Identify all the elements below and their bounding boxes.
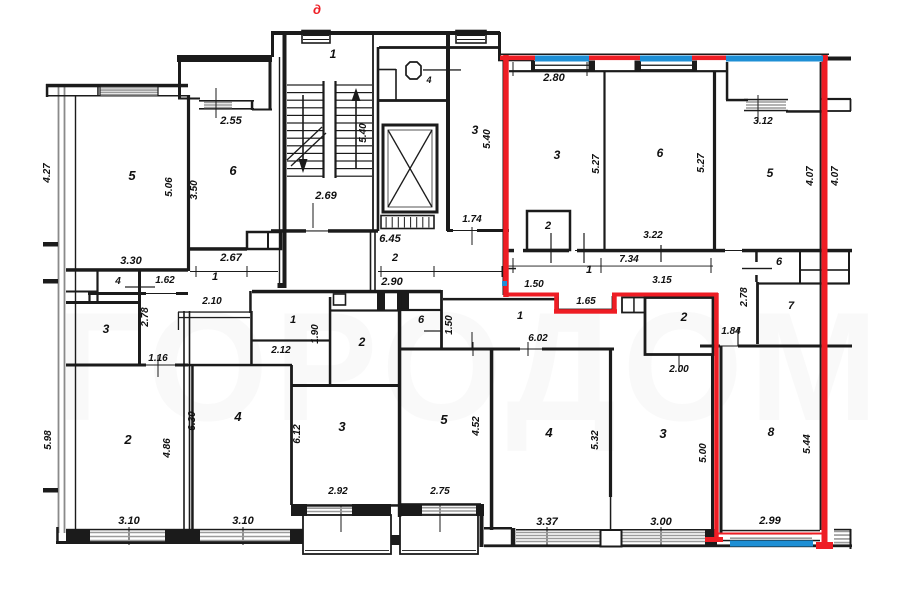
svg-text:2.80: 2.80 bbox=[542, 72, 565, 84]
svg-text:1: 1 bbox=[586, 264, 592, 276]
svg-text:1.90: 1.90 bbox=[310, 324, 321, 344]
svg-text:2.10: 2.10 bbox=[201, 296, 222, 307]
svg-text:2: 2 bbox=[358, 335, 366, 349]
svg-text:6: 6 bbox=[229, 163, 237, 178]
svg-text:1: 1 bbox=[212, 271, 218, 283]
svg-text:5: 5 bbox=[440, 412, 448, 427]
svg-text:6.02: 6.02 bbox=[528, 333, 548, 344]
svg-text:5.06: 5.06 bbox=[164, 177, 175, 197]
svg-text:5: 5 bbox=[128, 168, 136, 183]
svg-text:д: д bbox=[313, 2, 321, 17]
svg-text:1: 1 bbox=[290, 314, 296, 326]
svg-text:2.99: 2.99 bbox=[758, 515, 781, 527]
svg-text:1.50: 1.50 bbox=[524, 279, 544, 290]
svg-text:4.07: 4.07 bbox=[830, 166, 841, 187]
svg-text:1.65: 1.65 bbox=[576, 296, 596, 307]
svg-text:4.86: 4.86 bbox=[162, 438, 173, 459]
svg-text:5: 5 bbox=[767, 166, 774, 180]
svg-text:2: 2 bbox=[544, 220, 551, 232]
svg-text:5.27: 5.27 bbox=[591, 154, 602, 174]
svg-text:2.90: 2.90 bbox=[380, 276, 403, 288]
svg-text:3.12: 3.12 bbox=[753, 116, 773, 127]
svg-text:4: 4 bbox=[233, 409, 242, 424]
svg-text:2: 2 bbox=[680, 310, 688, 324]
svg-text:2.92: 2.92 bbox=[327, 486, 348, 497]
svg-text:2: 2 bbox=[123, 432, 132, 447]
svg-text:5.40: 5.40 bbox=[482, 129, 493, 149]
svg-text:4.07: 4.07 bbox=[805, 166, 816, 187]
svg-text:3: 3 bbox=[103, 322, 110, 336]
svg-text:5.98: 5.98 bbox=[43, 430, 54, 450]
svg-text:2.78: 2.78 bbox=[739, 287, 750, 308]
svg-text:3: 3 bbox=[554, 148, 561, 162]
svg-text:6: 6 bbox=[418, 314, 425, 326]
svg-text:4: 4 bbox=[425, 75, 431, 85]
svg-text:4: 4 bbox=[114, 276, 121, 287]
svg-text:7: 7 bbox=[788, 300, 795, 312]
svg-text:3.37: 3.37 bbox=[536, 516, 558, 528]
svg-text:7.34: 7.34 bbox=[619, 254, 639, 265]
svg-text:1.50: 1.50 bbox=[444, 315, 455, 335]
svg-text:6.12: 6.12 bbox=[292, 424, 303, 444]
svg-text:2.67: 2.67 bbox=[219, 252, 242, 264]
svg-text:6: 6 bbox=[776, 256, 783, 268]
svg-text:5.32: 5.32 bbox=[590, 430, 601, 450]
svg-text:2.75: 2.75 bbox=[429, 486, 450, 497]
svg-text:4: 4 bbox=[544, 425, 553, 440]
svg-text:2.69: 2.69 bbox=[314, 190, 337, 202]
svg-text:1.62: 1.62 bbox=[155, 275, 175, 286]
svg-text:4.52: 4.52 bbox=[471, 416, 482, 437]
svg-text:3: 3 bbox=[472, 123, 479, 137]
svg-text:3.10: 3.10 bbox=[118, 515, 140, 527]
svg-text:1.74: 1.74 bbox=[462, 214, 482, 225]
svg-text:3: 3 bbox=[659, 426, 667, 441]
svg-text:4.27: 4.27 bbox=[42, 163, 53, 184]
svg-text:3.30: 3.30 bbox=[120, 255, 142, 267]
svg-text:3.15: 3.15 bbox=[652, 275, 672, 286]
svg-text:6.45: 6.45 bbox=[379, 233, 401, 245]
svg-text:3.22: 3.22 bbox=[643, 230, 663, 241]
svg-text:3.00: 3.00 bbox=[650, 516, 672, 528]
svg-text:6.30: 6.30 bbox=[187, 411, 198, 431]
svg-text:1.84: 1.84 bbox=[721, 326, 741, 337]
svg-text:2.12: 2.12 bbox=[270, 345, 291, 356]
svg-text:5.27: 5.27 bbox=[696, 153, 707, 173]
svg-text:6: 6 bbox=[657, 146, 664, 160]
svg-text:1: 1 bbox=[517, 310, 523, 322]
svg-text:2.55: 2.55 bbox=[219, 115, 242, 127]
svg-text:1.16: 1.16 bbox=[148, 353, 168, 364]
svg-text:3.10: 3.10 bbox=[232, 515, 254, 527]
svg-text:3: 3 bbox=[338, 419, 346, 434]
svg-text:2: 2 bbox=[391, 252, 398, 264]
svg-text:2.78: 2.78 bbox=[140, 307, 151, 328]
svg-text:1: 1 bbox=[330, 47, 337, 61]
svg-text:3.50: 3.50 bbox=[189, 180, 200, 200]
svg-text:2.00: 2.00 bbox=[668, 364, 689, 375]
svg-text:5.44: 5.44 bbox=[802, 434, 813, 454]
svg-text:5.00: 5.00 bbox=[698, 443, 709, 463]
svg-text:5.40: 5.40 bbox=[358, 123, 369, 143]
svg-text:8: 8 bbox=[768, 425, 775, 439]
